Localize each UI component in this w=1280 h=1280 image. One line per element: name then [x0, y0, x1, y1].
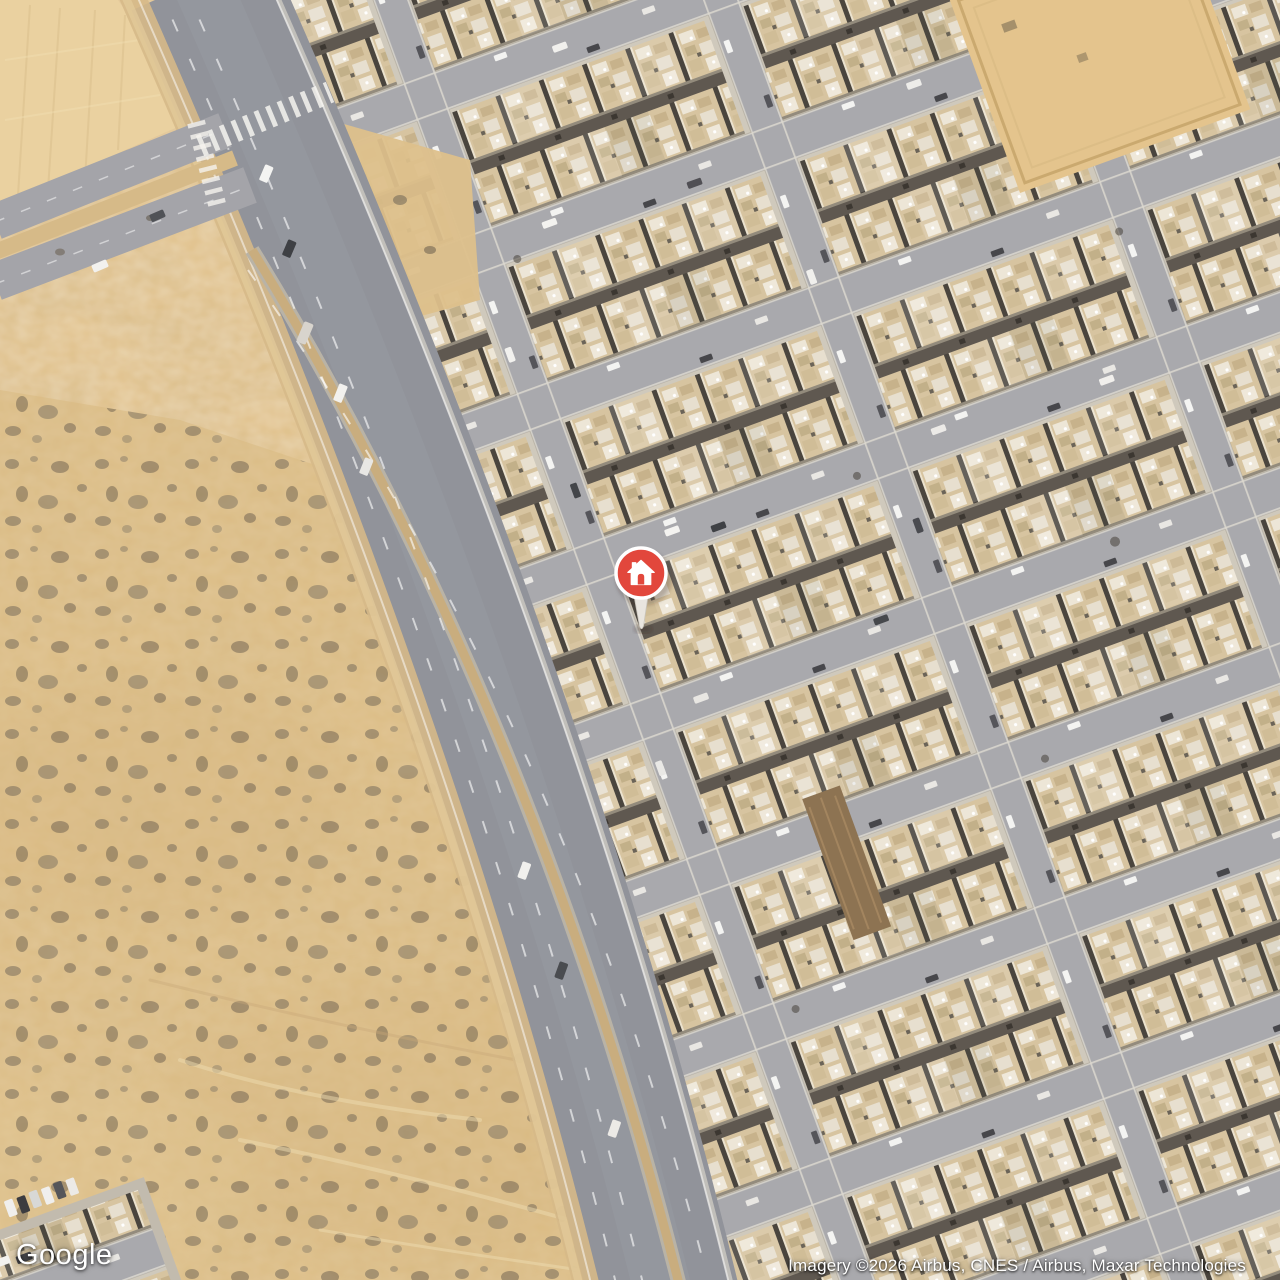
satellite-map[interactable]: Google Imagery ©2026 Airbus, CNES / Airb…	[0, 0, 1280, 1280]
map-canvas	[0, 0, 1280, 1280]
attribution: Imagery ©2026 Airbus, CNES / Airbus, Max…	[788, 1256, 1246, 1276]
google-logo[interactable]: Google	[16, 1239, 113, 1272]
